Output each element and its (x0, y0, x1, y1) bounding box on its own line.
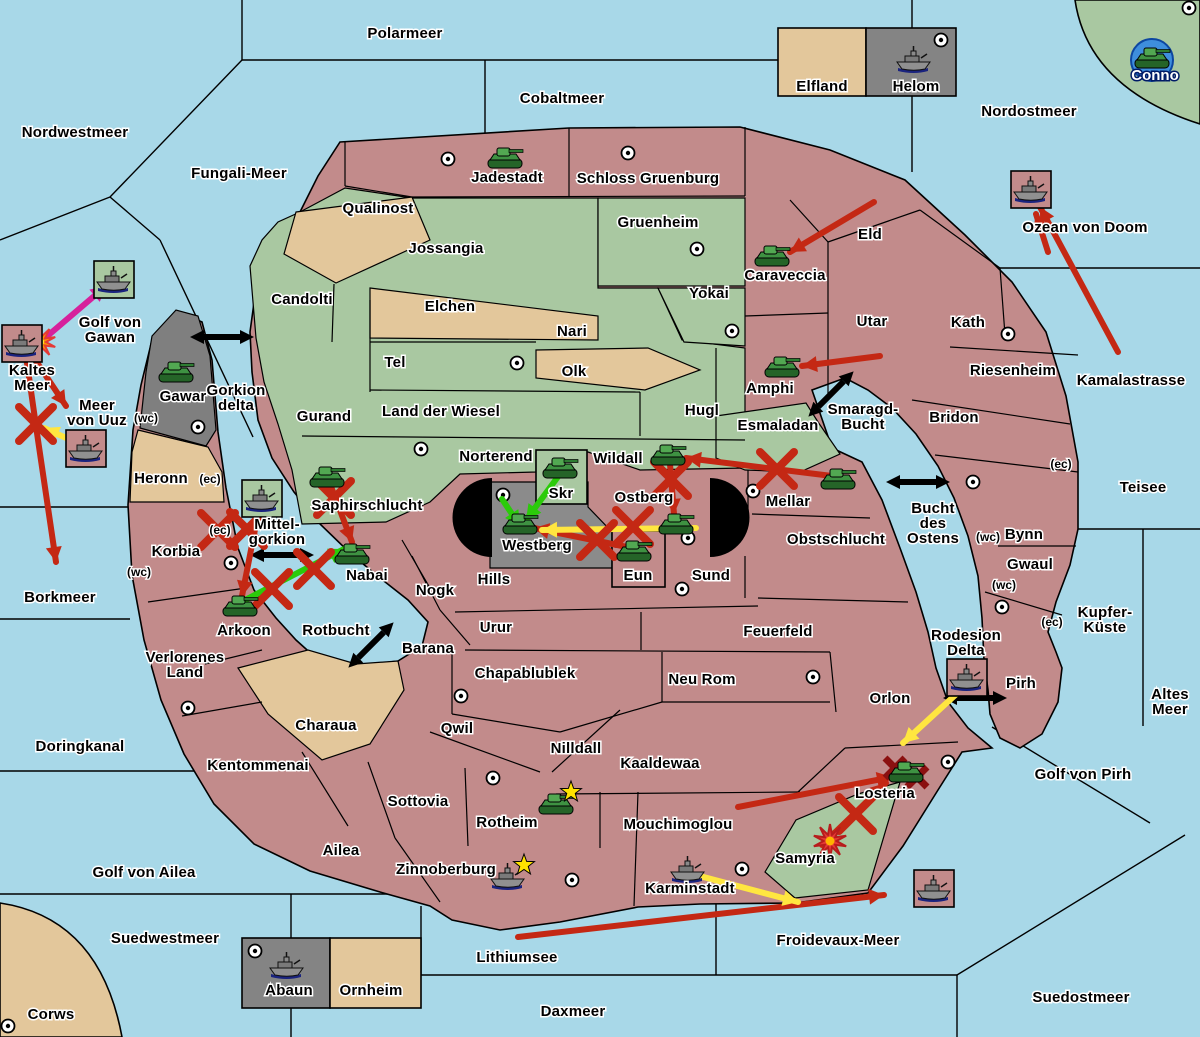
sea-label-polarmeer: Polarmeer (367, 25, 442, 42)
region-label-utar: Utar (857, 313, 888, 330)
region-label-mellar: Mellar (766, 493, 811, 510)
sea-label-golf-von-gawan: Golf vonGawan (79, 314, 141, 346)
region-label-nilldall: Nilldall (551, 740, 602, 757)
region-label-nabai: Nabai (346, 567, 388, 584)
region-label-eld: Eld (858, 226, 882, 243)
region-label-losteria: Losteria (855, 785, 915, 802)
sea-label-fungali-meer: Fungali-Meer (191, 165, 287, 182)
sea-label-kaltes-meer: KaltesMeer (9, 362, 55, 394)
sea-label-cobaltmeer: Cobaltmeer (520, 90, 605, 107)
region-label-elchen: Elchen (425, 298, 475, 315)
region-label-obstschlucht: Obstschlucht (787, 531, 885, 548)
region-label-chapablublek: Chapablublek (475, 665, 576, 682)
region-label-land-der-wiesel: Land der Wiesel (382, 403, 500, 420)
supply-center-icon (415, 443, 428, 456)
region-label-wildall: Wildall (593, 450, 643, 467)
sea-label-doringkanal: Doringkanal (36, 738, 125, 755)
sea-label-ozean-von-doom: Ozean von Doom (1022, 219, 1147, 236)
coast-marker-0: (wc) (134, 411, 158, 425)
region-label-bynn: Bynn (1005, 526, 1043, 543)
supply-center-icon (442, 153, 455, 166)
region-label-rotheim: Rotheim (476, 814, 537, 831)
region-label-esmaladan: Esmaladan (737, 417, 818, 434)
sea-label-golf-von-ailea: Golf von Ailea (92, 864, 196, 881)
region-label-tel: Tel (384, 354, 405, 371)
supply-center-icon (1002, 328, 1015, 341)
supply-center-icon (249, 945, 262, 958)
sea-label-borkmeer: Borkmeer (24, 589, 96, 606)
sea-label-daxmeer: Daxmeer (541, 1003, 606, 1020)
supply-center-icon (455, 690, 468, 703)
region-label-conno: Conno (1131, 67, 1178, 84)
fleet-unit-meer-von-uuz[interactable] (66, 430, 106, 467)
region-label-ailea: Ailea (323, 842, 360, 859)
region-label-mouchimoglou: Mouchimoglou (623, 816, 732, 833)
region-label-barana: Barana (402, 640, 455, 657)
region-label-zinnoberburg: Zinnoberburg (396, 861, 496, 878)
supply-center-icon (807, 671, 820, 684)
fleet-unit-mittel-gorkion[interactable] (242, 480, 282, 517)
region-label-gurand: Gurand (297, 408, 352, 425)
sea-label-golf-von-pirh: Golf von Pirh (1035, 766, 1132, 783)
region-label-ostberg: Ostberg (615, 489, 674, 506)
region-label-neu-rom: Neu Rom (668, 671, 735, 688)
sea-label-froidevaux-meer: Froidevaux-Meer (776, 932, 899, 949)
sea-label-altes-meer: AltesMeer (1151, 686, 1189, 718)
region-label-orlon: Orlon (870, 690, 911, 707)
region-label-arkoon: Arkoon (217, 622, 271, 639)
region-label-kaaldewaa: Kaaldewaa (620, 755, 700, 772)
region-label-kath: Kath (951, 314, 985, 331)
fleet-unit-froidevaux-meer[interactable] (914, 870, 954, 907)
region-label-olk: Olk (562, 363, 587, 380)
map-canvas: NordwestmeerPolarmeerCobaltmeerNordostme… (0, 0, 1200, 1037)
region-label-feuerfeld: Feuerfeld (743, 623, 812, 640)
game-map: NordwestmeerPolarmeerCobaltmeerNordostme… (0, 0, 1200, 1037)
supply-center-icon (2, 1020, 15, 1033)
region-label-kentommenai: Kentommenai (207, 757, 308, 774)
sea-label-mittel-gorkion: Mittel-gorkion (249, 516, 305, 548)
coast-marker-5: (wc) (976, 530, 1000, 544)
region-label-riesenheim: Riesenheim (970, 362, 1056, 379)
region-label-candolti: Candolti (271, 291, 333, 308)
supply-center-icon (691, 243, 704, 256)
region-label-charaua: Charaua (295, 717, 357, 734)
region-label-westberg: Westberg (502, 537, 572, 554)
supply-center-icon (935, 34, 948, 47)
region-label-bridon: Bridon (929, 409, 979, 426)
region-label-qwil: Qwil (441, 720, 473, 737)
supply-center-icon (736, 863, 749, 876)
sea-label-suedostmeer: Suedostmeer (1032, 989, 1129, 1006)
region-label-nogk: Nogk (416, 582, 455, 599)
supply-center-icon (192, 421, 205, 434)
region-label-schloss-gruenburg: Schloss Gruenburg (577, 170, 720, 187)
sea-label-kamalastrasse: Kamalastrasse (1077, 372, 1186, 389)
coast-marker-3: (wc) (127, 565, 151, 579)
region-label-abaun: Abaun (265, 982, 313, 999)
region-label-yokai: Yokai (689, 285, 729, 302)
supply-center-icon (676, 583, 689, 596)
sea-label-nordwestmeer: Nordwestmeer (22, 124, 129, 141)
region-label-urur: Urur (480, 619, 512, 636)
coast-marker-6: (wc) (992, 578, 1016, 592)
region-label-samyria: Samyria (775, 850, 835, 867)
region-label-qualinost: Qualinost (343, 200, 414, 217)
region-label-skr: Skr (549, 485, 574, 502)
region-label-sund: Sund (692, 567, 730, 584)
supply-center-icon (996, 601, 1009, 614)
region-label-nari: Nari (557, 323, 587, 340)
region-label-hills: Hills (478, 571, 511, 588)
region-label-korbia: Korbia (152, 543, 201, 560)
supply-center-icon (487, 772, 500, 785)
sea-label-nordostmeer: Nordostmeer (981, 103, 1077, 120)
supply-center-icon (967, 476, 980, 489)
supply-center-icon (1183, 2, 1196, 15)
sea-label-lithiumsee: Lithiumsee (476, 949, 557, 966)
region-label-caraveccia: Caraveccia (744, 267, 826, 284)
sea-label-rotbucht: Rotbucht (302, 622, 369, 639)
sea-label-kupfer-kueste: Kupfer-Küste (1078, 604, 1133, 636)
region-label-pirh: Pirh (1006, 675, 1036, 692)
fleet-unit-ozean-von-doom[interactable] (1011, 171, 1051, 208)
region-label-gruenheim: Gruenheim (618, 214, 699, 231)
supply-center-icon (622, 147, 635, 160)
coast-marker-4: (ec) (1050, 457, 1071, 471)
sea-label-suedwestmeer: Suedwestmeer (111, 930, 219, 947)
fleet-unit-golf-von-gawan[interactable] (94, 261, 134, 298)
supply-center-icon (225, 557, 238, 570)
supply-center-icon (566, 874, 579, 887)
region-label-karminstadt: Karminstadt (645, 880, 735, 897)
region-label-ornheim: Ornheim (339, 982, 402, 999)
supply-center-icon (511, 357, 524, 370)
region-label-jossangia: Jossangia (408, 240, 484, 257)
region-label-eun: Eun (624, 567, 653, 584)
region-label-saphirschlucht: Saphirschlucht (311, 497, 422, 514)
fleet-unit-kaltes-meer[interactable] (2, 325, 42, 362)
region-label-hugl: Hugl (685, 402, 719, 419)
supply-center-icon (726, 325, 739, 338)
region-label-corws: Corws (28, 1006, 75, 1023)
region-label-helom: Helom (893, 78, 940, 95)
coast-marker-2: (ec) (209, 523, 230, 537)
sea-label-teisee: Teisee (1120, 479, 1167, 496)
coast-marker-7: (ec) (1041, 615, 1062, 629)
region-label-gwaul: Gwaul (1007, 556, 1053, 573)
region-label-elfland: Elfland (796, 78, 847, 95)
supply-center-icon (182, 702, 195, 715)
region-label-amphi: Amphi (746, 380, 794, 397)
coast-marker-1: (ec) (199, 472, 220, 486)
region-label-norterend: Norterend (459, 448, 532, 465)
region-shape-gruenheim[interactable] (598, 198, 745, 286)
supply-center-icon (942, 756, 955, 769)
region-label-heronn: Heronn (134, 470, 188, 487)
fleet-unit-rodesion-delta[interactable] (947, 659, 987, 696)
region-label-gawar: Gawar (160, 388, 207, 405)
region-label-jadestadt: Jadestadt (471, 169, 543, 186)
region-label-sottovia: Sottovia (388, 793, 449, 810)
